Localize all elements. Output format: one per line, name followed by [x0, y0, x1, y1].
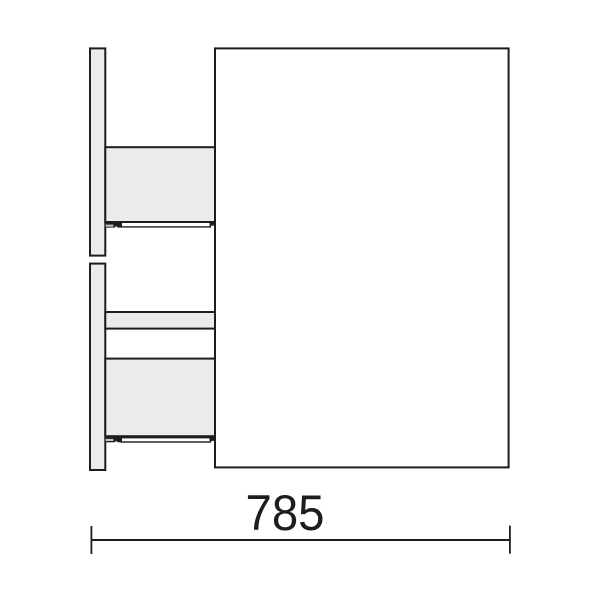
svg-text:785: 785: [246, 485, 325, 541]
